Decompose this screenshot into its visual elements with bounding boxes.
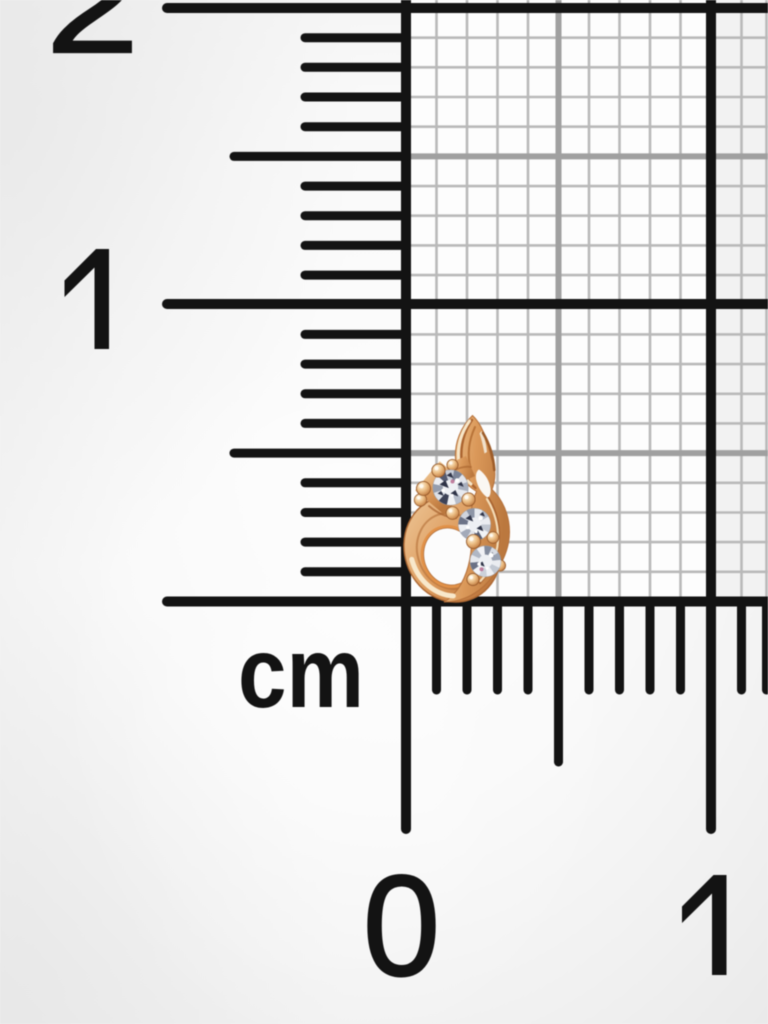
svg-text:0: 0	[363, 847, 440, 1006]
svg-text:cm: cm	[238, 617, 364, 729]
svg-text:2: 2	[46, 0, 139, 82]
